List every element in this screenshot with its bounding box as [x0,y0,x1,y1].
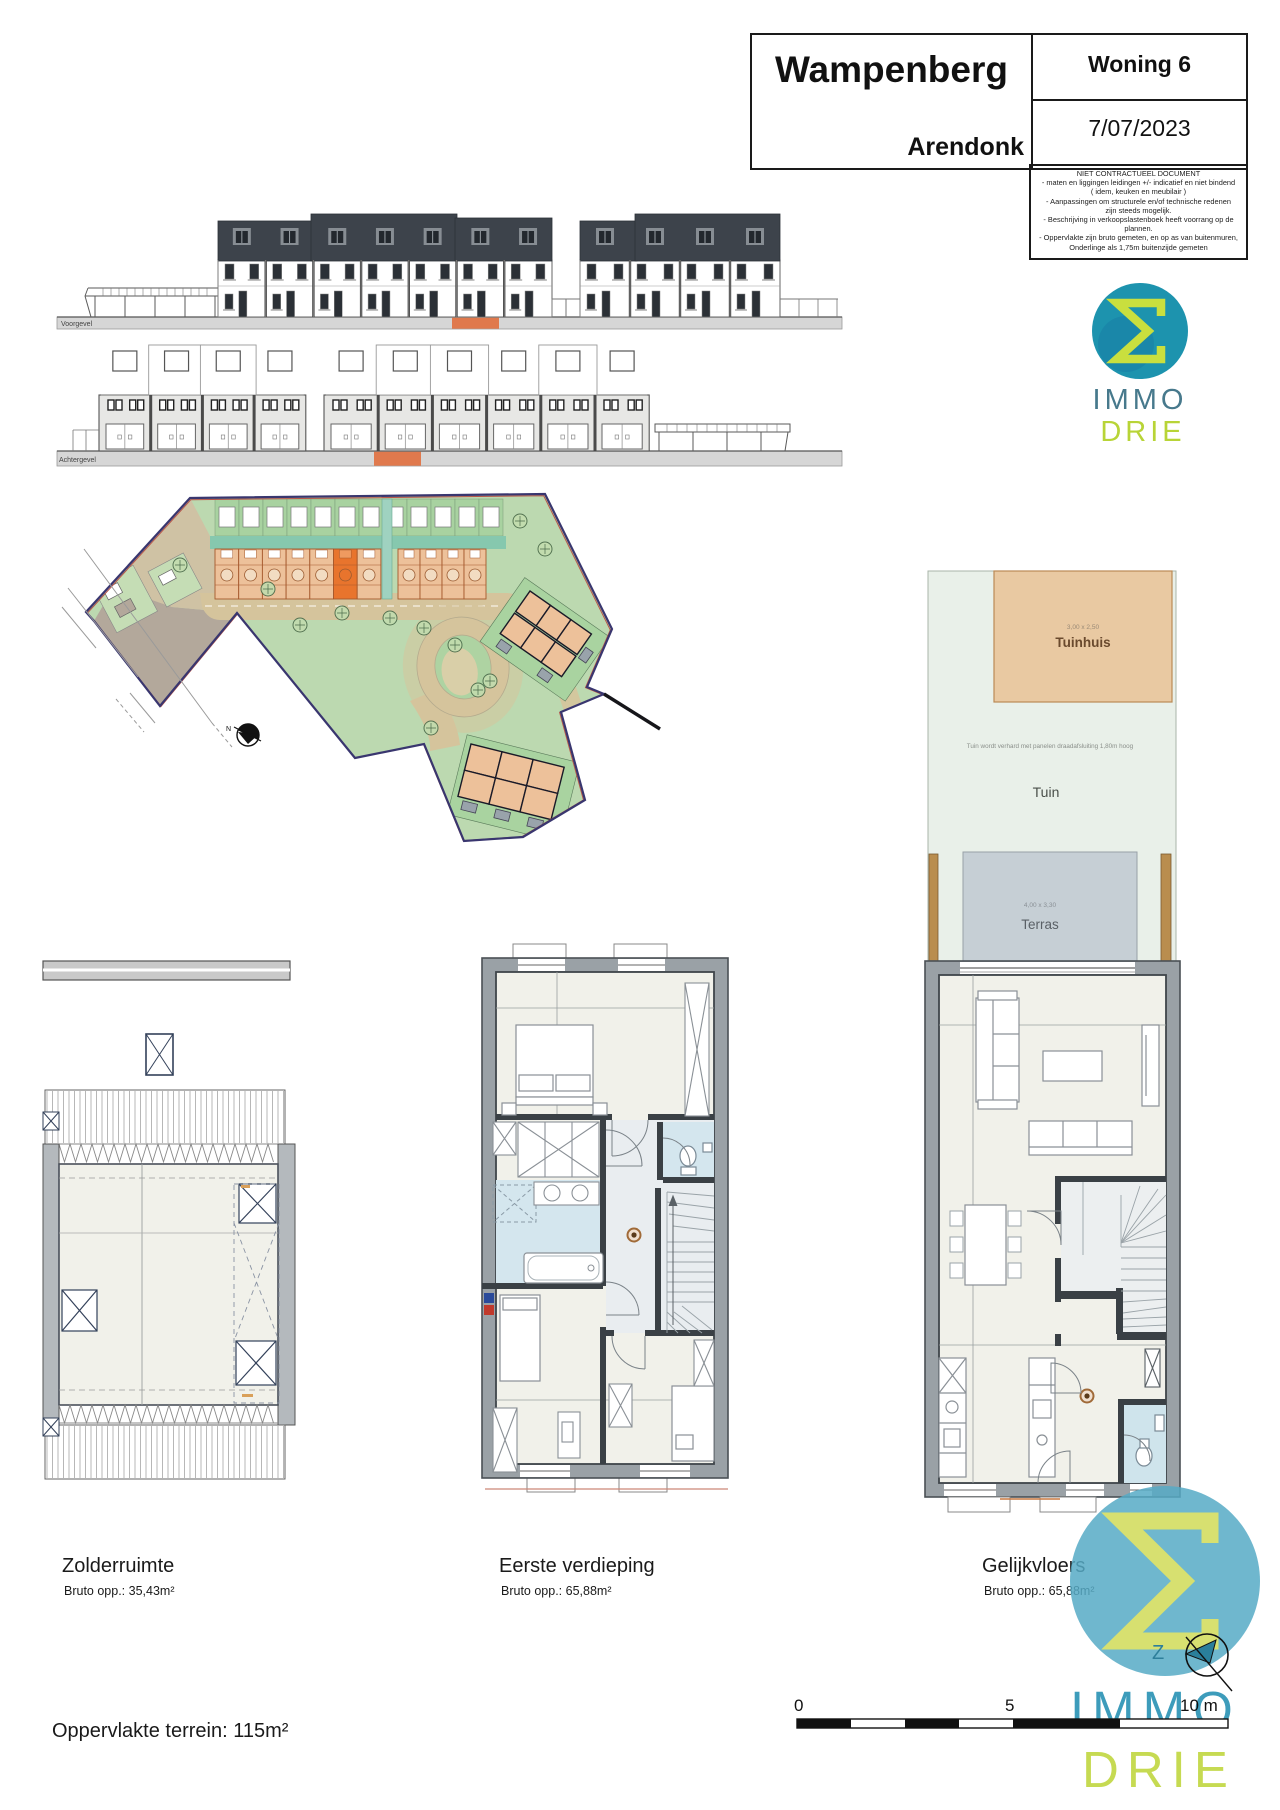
svg-text:Tuin: Tuin [1033,784,1060,800]
svg-text:Voorgevel: Voorgevel [61,321,93,328]
svg-text:Tuinhuis: Tuinhuis [1055,635,1110,650]
svg-text:Achtergevel: Achtergevel [59,457,96,464]
svg-text:DRIE: DRIE [1100,416,1185,448]
svg-text:4,00 x 3,30: 4,00 x 3,30 [1024,902,1057,909]
svg-text:Z: Z [1152,1642,1164,1664]
svg-text:3,00 x 2,50: 3,00 x 2,50 [1067,624,1100,631]
svg-text:5: 5 [1005,1696,1014,1715]
svg-text:0: 0 [794,1696,803,1715]
svg-text:IMMO: IMMO [1093,384,1188,416]
svg-text:10 m: 10 m [1180,1696,1218,1715]
svg-text:N: N [226,726,231,733]
svg-text:DRIE: DRIE [1082,1741,1236,1798]
svg-text:Tuin wordt verhard met panelen: Tuin wordt verhard met panelen draadafsl… [967,743,1134,750]
svg-text:Terras: Terras [1021,917,1059,932]
